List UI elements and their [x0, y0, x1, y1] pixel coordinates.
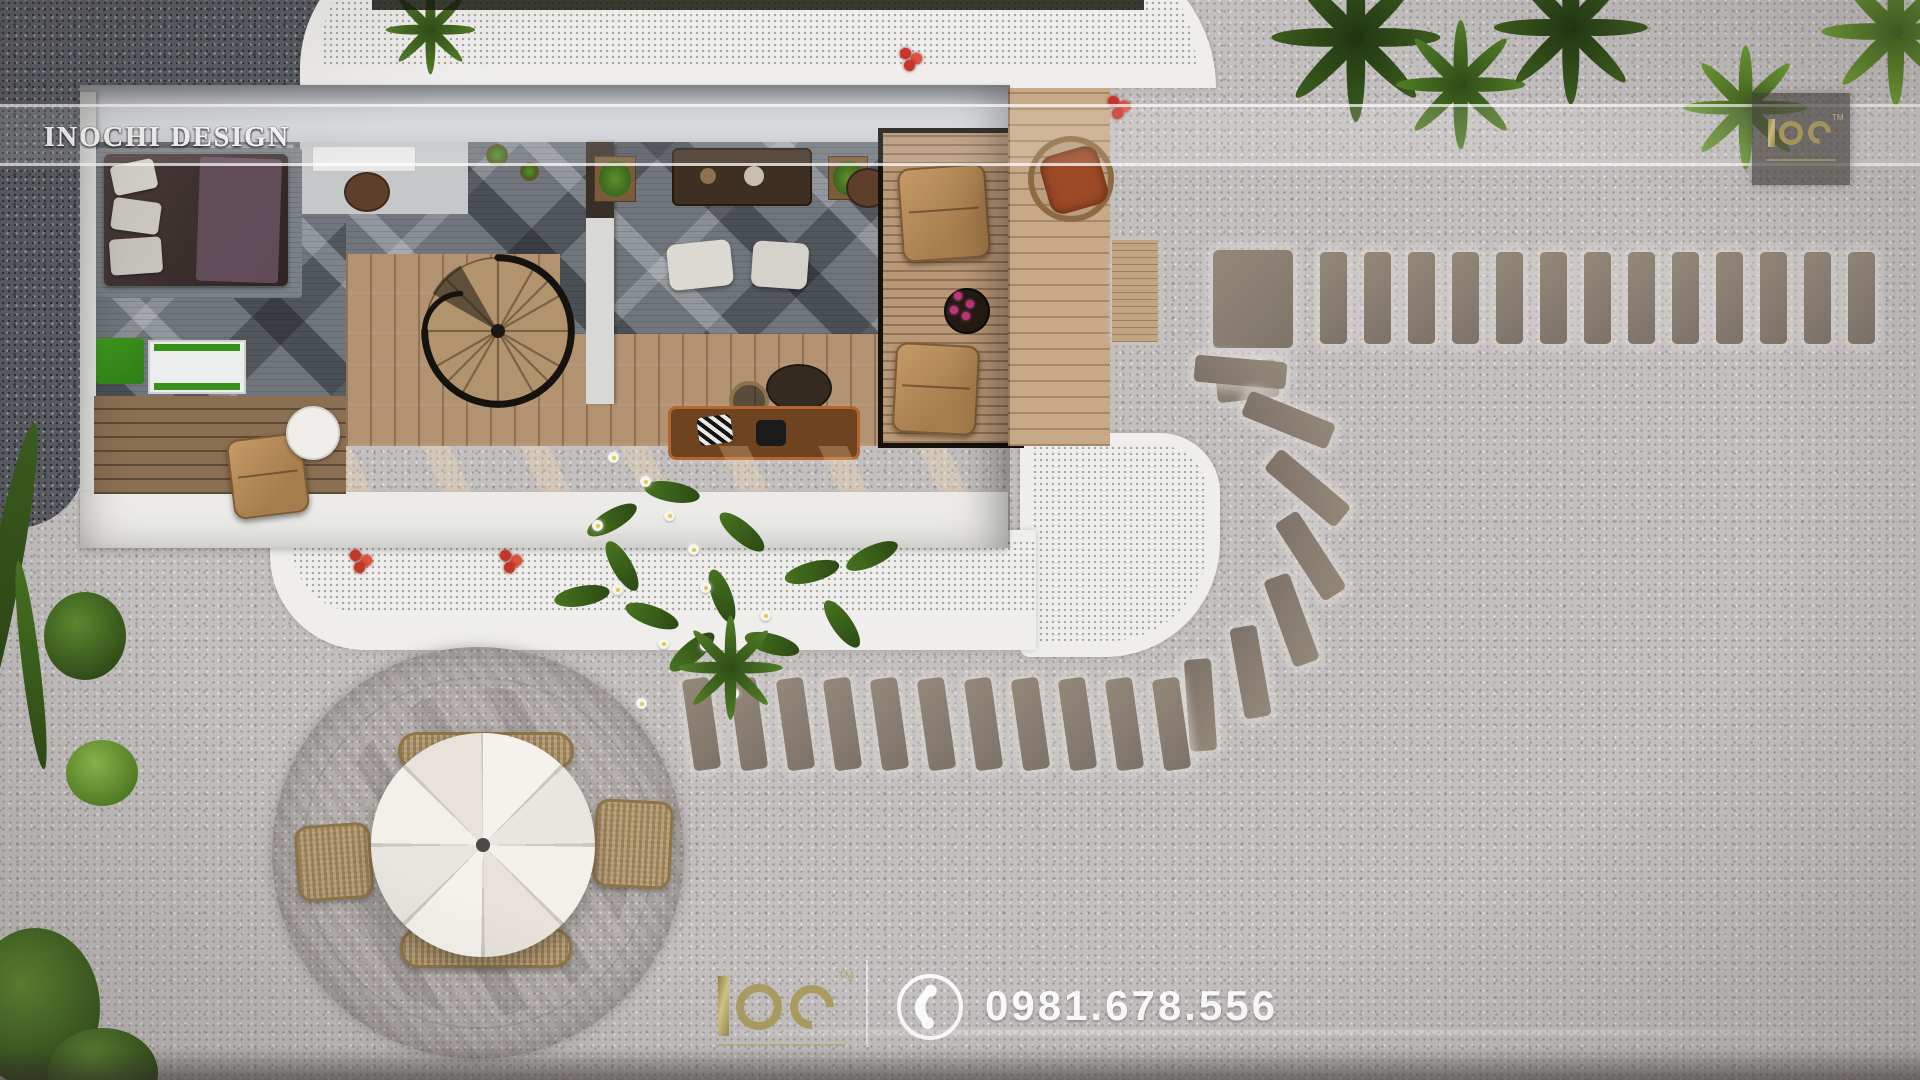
watermark-band: INOCHI DESIGN-INOCHI DESIGN-INOCHI DESIG…: [0, 118, 1920, 158]
ioc-gold-monogram-icon: [718, 976, 729, 1036]
top-shadow-strip: [372, 0, 1144, 10]
house-base-path: [80, 492, 1008, 548]
plumeria-flower: [592, 520, 603, 531]
stepping-stone: [1540, 252, 1567, 344]
watermark-label: INOCHI DESIGN: [44, 122, 290, 154]
patterned-pillow: [696, 414, 734, 446]
red-flower-cluster: [350, 550, 380, 576]
green-stool: [96, 338, 144, 384]
flower-side-table: [944, 288, 990, 334]
stepping-stone: [1848, 252, 1875, 344]
lime-plant: [66, 740, 138, 806]
ioc-ring-icon: [1779, 121, 1803, 145]
phone-number: 0981.678.556: [985, 982, 1278, 1030]
stepping-stone: [1320, 252, 1347, 344]
plumeria-flower: [760, 610, 771, 621]
watermark-line-top: [0, 104, 1920, 107]
table-decor-plate: [744, 166, 764, 186]
umbrella-center-pole: [476, 838, 490, 852]
bed-pillow: [109, 236, 163, 276]
bed-pillow: [110, 197, 162, 235]
vertical-divider: [866, 960, 868, 1044]
balcony-side-table: [286, 406, 340, 460]
dark-gravel-left-strip: [0, 0, 86, 528]
stepping-stone: [1584, 252, 1611, 344]
plumeria-flower: [612, 584, 623, 595]
ioc-c-icon: [1803, 116, 1836, 149]
wood-step-pad: [1112, 240, 1158, 342]
stepping-stone: [1408, 252, 1435, 344]
trademark-mark: TM: [1832, 113, 1844, 122]
pergola-lounge-chair: [892, 342, 981, 436]
spiral-staircase: [420, 253, 576, 409]
floor-cushion: [666, 239, 734, 291]
garden-bush: [44, 592, 126, 680]
ioc-gold-monogram-icon: [1768, 119, 1775, 147]
stepping-stone-large: [1213, 250, 1293, 348]
stepping-stone: [1628, 252, 1655, 344]
bottom-shadow-strip: [0, 1048, 1920, 1080]
stepping-stone: [1716, 252, 1743, 344]
table-decor-bowl: [700, 168, 716, 184]
floor-cushion: [750, 240, 809, 290]
patio-chair-east: [592, 798, 674, 890]
trademark-mark: TM: [838, 970, 854, 982]
red-flower-cluster: [900, 48, 930, 74]
plumeria-flower: [636, 698, 647, 709]
bed-throw-blanket: [196, 157, 282, 284]
ioc-c-icon: [781, 976, 843, 1038]
plumeria-flower: [664, 510, 675, 521]
plumeria-flower: [658, 638, 669, 649]
plumeria-flower: [640, 476, 651, 487]
watermark-line-bottom: [0, 163, 1920, 166]
green-drawer-unit: [148, 340, 246, 394]
black-pillow: [756, 420, 786, 446]
plumeria-flower: [608, 452, 619, 463]
plumeria-flower: [700, 582, 711, 593]
stepping-stone: [1760, 252, 1787, 344]
patio-chair-west: [293, 821, 374, 902]
footer-brand-logo: TM: [718, 962, 868, 1052]
footer-logo-underline: [718, 1044, 846, 1046]
lawn-bottom: [292, 540, 1036, 612]
badge-subtext-line: [1766, 159, 1836, 161]
desk-chair: [344, 172, 390, 212]
plumeria-flower: [688, 544, 699, 555]
stepping-stone: [1496, 252, 1523, 344]
red-flower-cluster: [500, 550, 530, 576]
stepping-stone: [1804, 252, 1831, 344]
ioc-ring-icon: [736, 984, 782, 1030]
brand-badge: TM: [1752, 93, 1850, 185]
stepping-stone: [1672, 252, 1699, 344]
stepping-stone: [1452, 252, 1479, 344]
coffee-table: [766, 364, 832, 412]
phone-handset-icon: [897, 974, 963, 1040]
pergola-lounge-chair: [897, 163, 991, 263]
architecture-render-stage: INOCHI DESIGN-INOCHI DESIGN-INOCHI DESIG…: [0, 0, 1920, 1080]
stepping-stone: [1364, 252, 1391, 344]
